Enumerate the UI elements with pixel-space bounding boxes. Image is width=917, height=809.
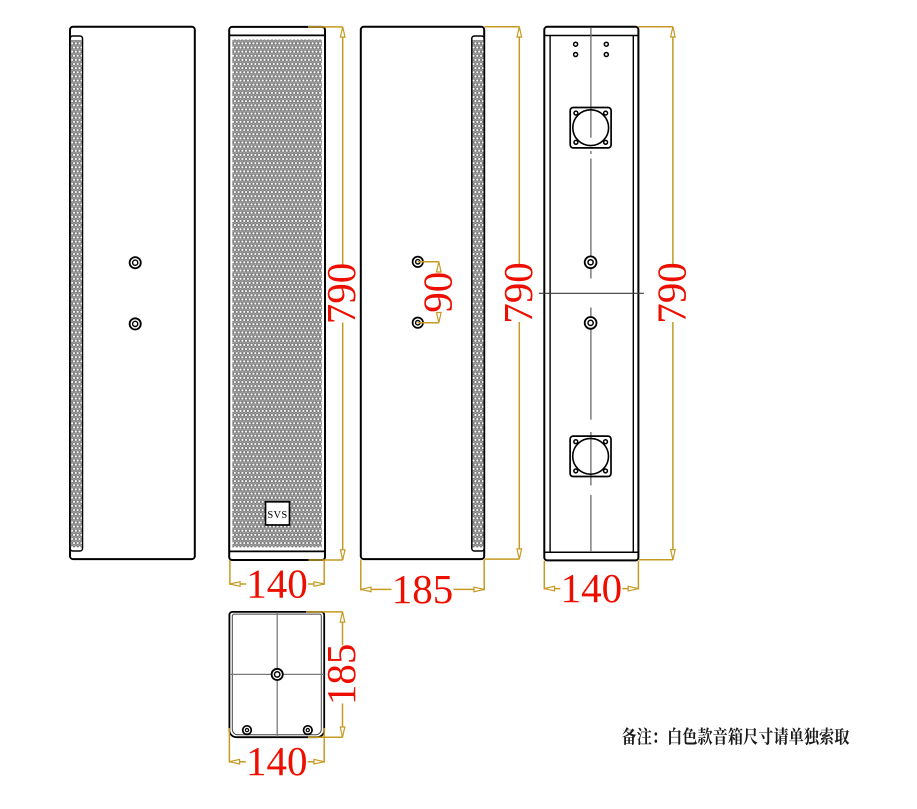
svg-text:185: 185 xyxy=(318,644,364,706)
svg-text:140: 140 xyxy=(246,738,308,784)
svg-text:90: 90 xyxy=(414,272,460,313)
svg-text:790: 790 xyxy=(495,262,541,324)
svg-text:SVS: SVS xyxy=(267,510,287,521)
svg-text:790: 790 xyxy=(648,262,694,324)
svg-text:140: 140 xyxy=(246,561,308,607)
svg-text:140: 140 xyxy=(561,565,623,611)
svg-text:185: 185 xyxy=(392,566,454,612)
svg-text:790: 790 xyxy=(318,263,364,325)
